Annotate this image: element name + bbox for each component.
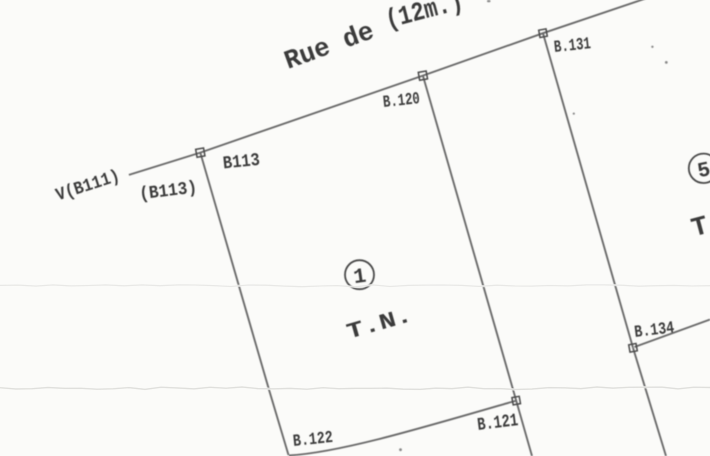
- svg-text:B113: B113: [222, 151, 261, 175]
- svg-text:B.120: B.120: [382, 90, 421, 113]
- svg-text:B.131: B.131: [553, 35, 592, 58]
